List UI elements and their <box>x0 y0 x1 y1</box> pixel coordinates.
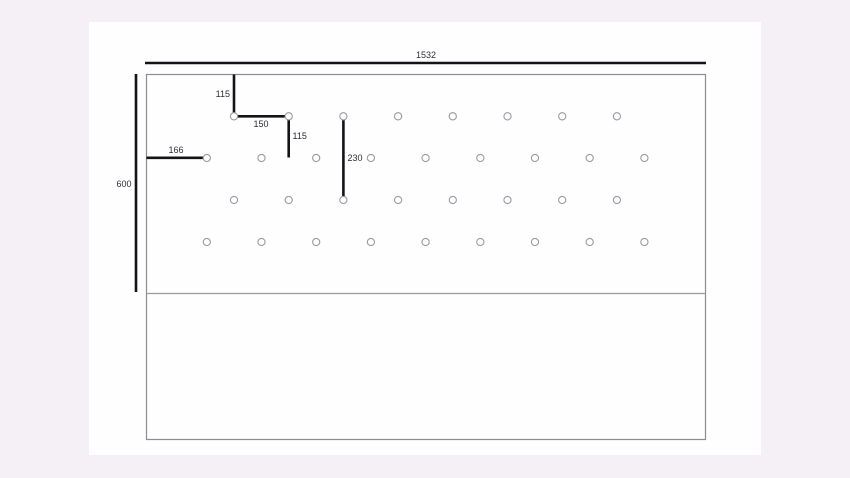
hole <box>340 113 347 120</box>
hole <box>203 238 210 245</box>
hole <box>395 113 402 120</box>
hole <box>230 113 237 120</box>
app-background: { "diagram": { "dim_labels": { "overall_… <box>0 0 850 478</box>
panel-outline <box>147 75 706 440</box>
hole <box>641 154 648 161</box>
hole <box>313 238 320 245</box>
hole <box>613 196 620 203</box>
hole <box>258 238 265 245</box>
hole <box>449 113 456 120</box>
hole <box>313 154 320 161</box>
hole <box>641 238 648 245</box>
dim-overall-width-label: 1532 <box>416 50 436 60</box>
hole <box>422 154 429 161</box>
hole <box>367 238 374 245</box>
hole <box>586 154 593 161</box>
dim-overall-height-label: 600 <box>116 179 131 189</box>
hole <box>422 238 429 245</box>
hole <box>586 238 593 245</box>
hole-grid <box>203 113 648 246</box>
hole <box>477 238 484 245</box>
dim-left-edge-offset-label: 166 <box>168 145 183 155</box>
hole <box>230 196 237 203</box>
hole <box>504 113 511 120</box>
hole <box>531 154 538 161</box>
hole <box>613 113 620 120</box>
dim-hole-pitch-label: 150 <box>253 119 268 129</box>
hole <box>340 196 347 203</box>
hole <box>367 154 374 161</box>
hole <box>285 196 292 203</box>
hole <box>285 113 292 120</box>
hole <box>477 154 484 161</box>
hole <box>531 238 538 245</box>
dim-two-row-spacing-label: 230 <box>348 153 363 163</box>
dim-row-offset-label: 115 <box>293 131 307 141</box>
hole <box>559 113 566 120</box>
hole <box>258 154 265 161</box>
hole <box>449 196 456 203</box>
hole <box>203 154 210 161</box>
hole <box>559 196 566 203</box>
hole <box>504 196 511 203</box>
hole <box>395 196 402 203</box>
dim-top-offset-label: 115 <box>216 89 230 99</box>
panel-drawing: 1532 600 115 150 115 166 230 <box>0 0 850 478</box>
